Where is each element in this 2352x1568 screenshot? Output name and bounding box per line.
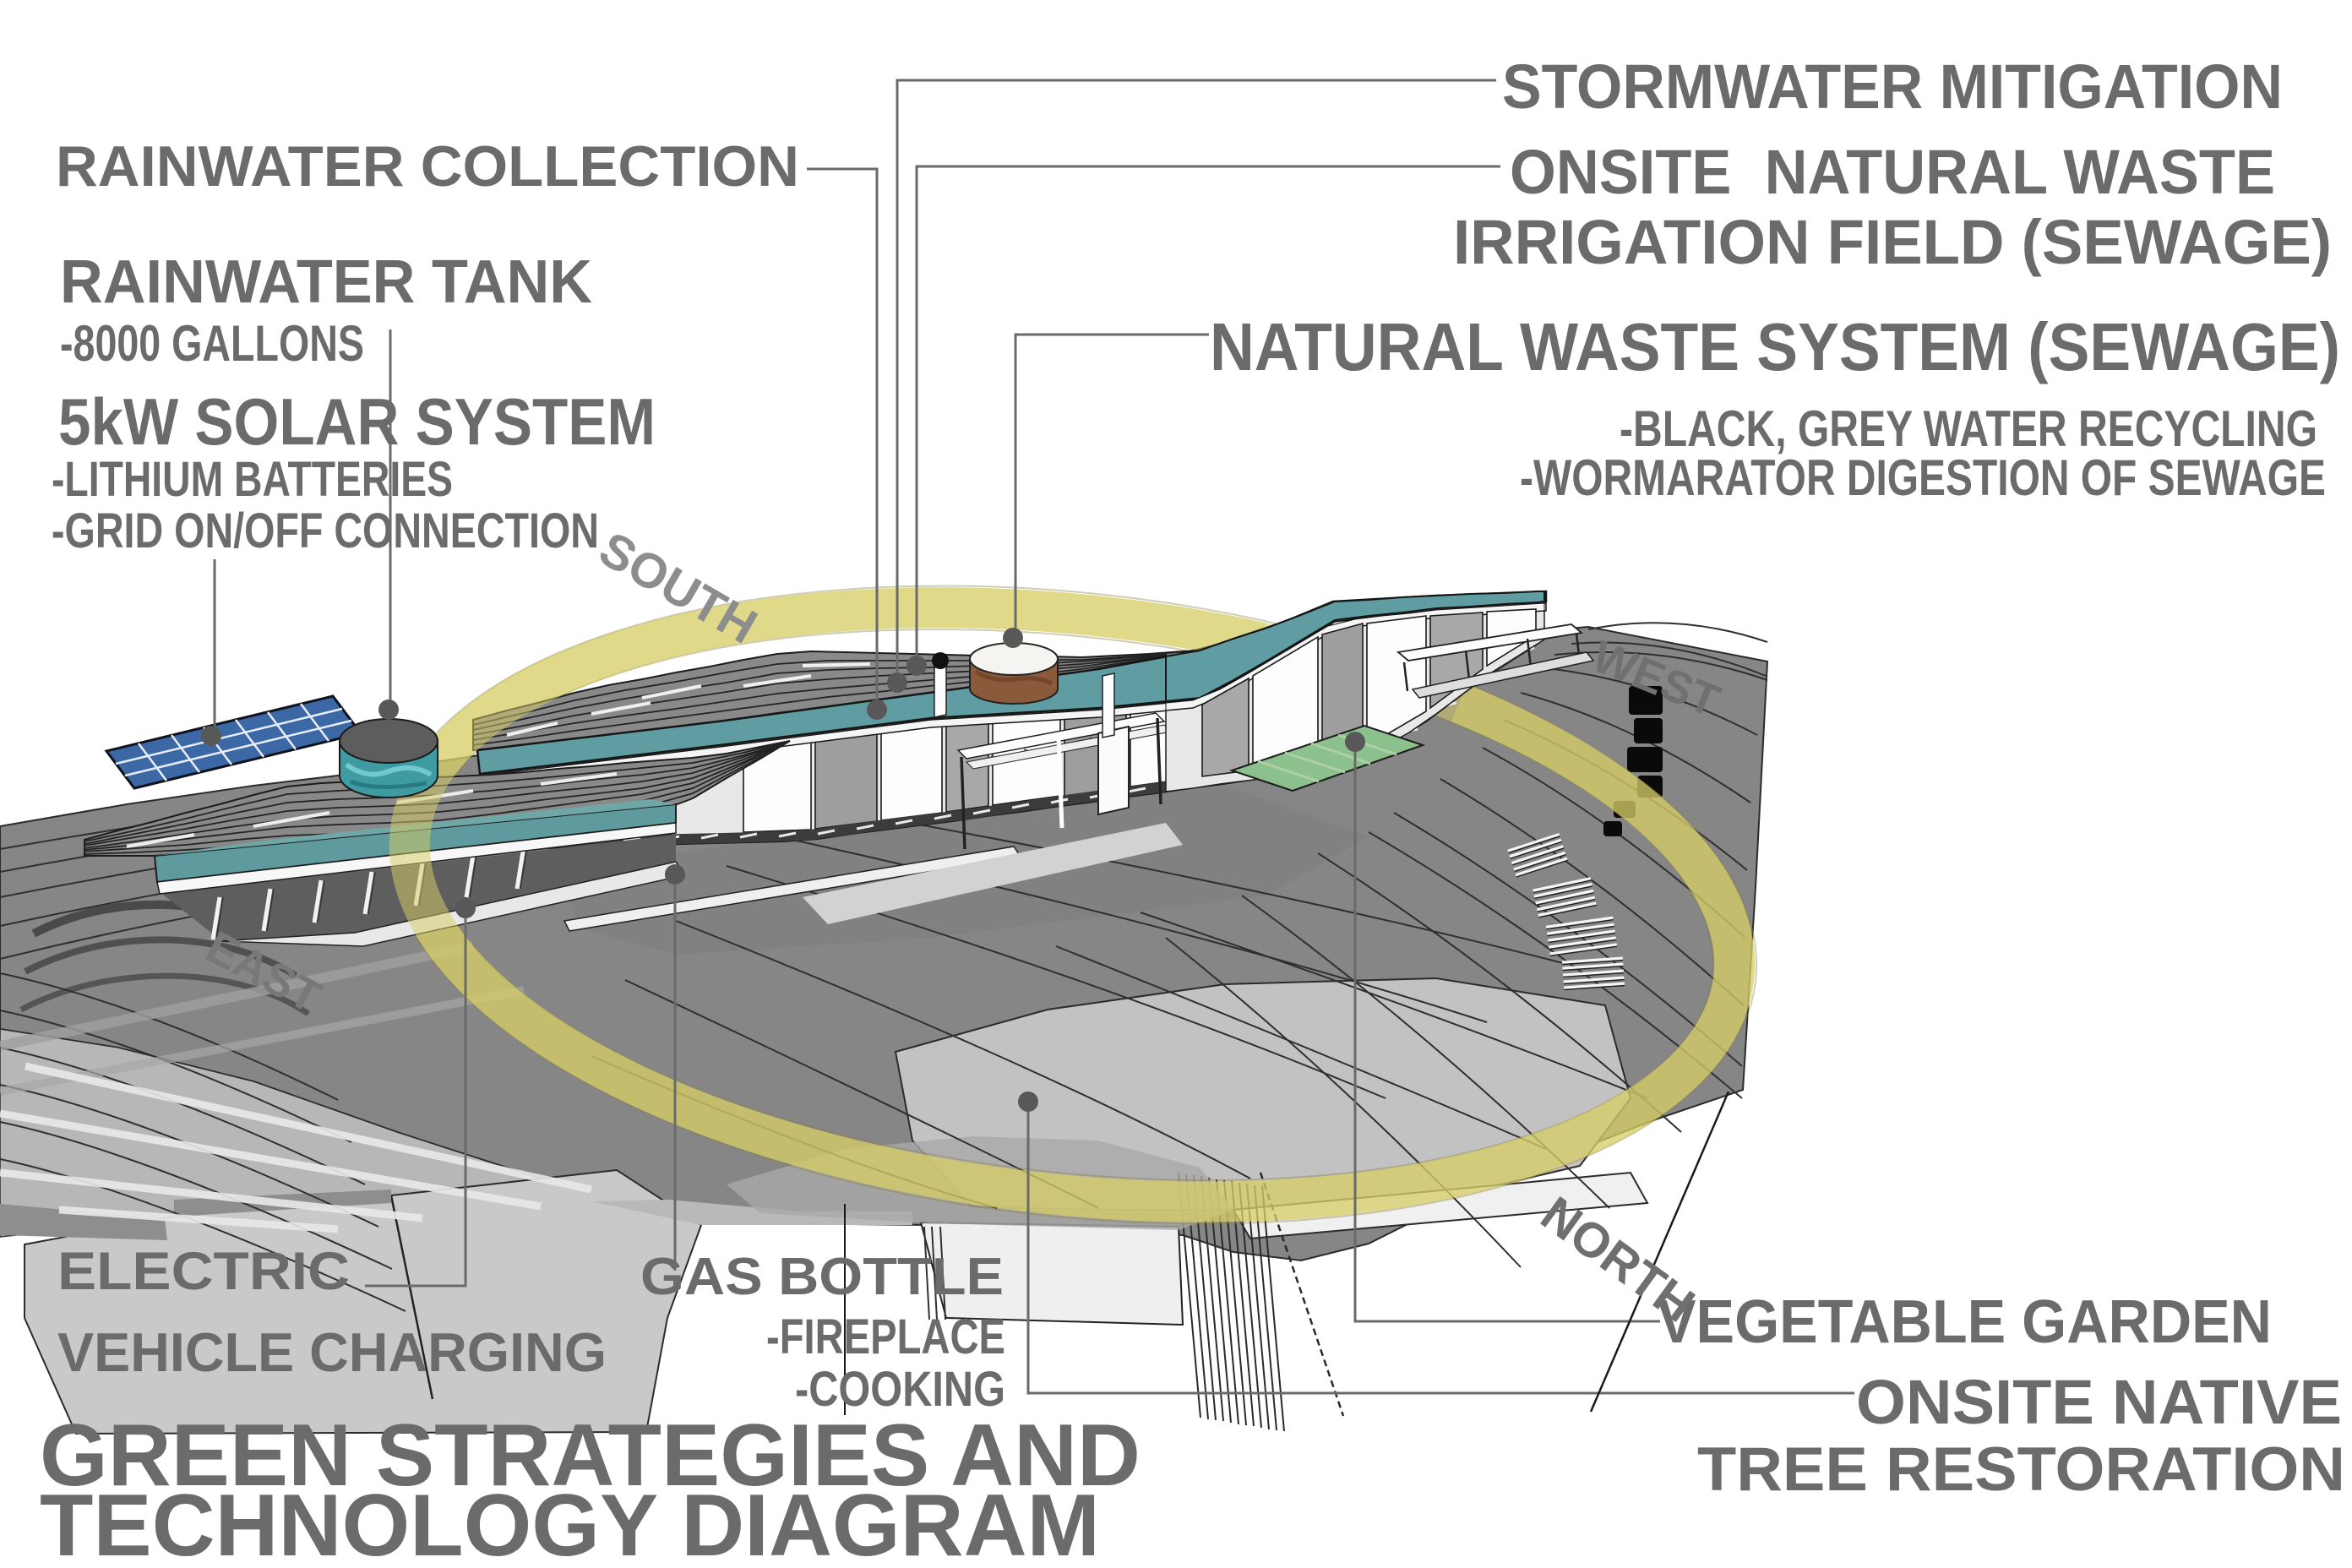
svg-text:GAS BOTTLE: GAS BOTTLE xyxy=(640,1248,1004,1306)
svg-text:-8000 GALLONS: -8000 GALLONS xyxy=(60,315,364,372)
svg-text:IRRIGATION FIELD (SEWAGE): IRRIGATION FIELD (SEWAGE) xyxy=(1453,207,2332,277)
svg-text:RAINWATER TANK: RAINWATER TANK xyxy=(60,248,592,316)
svg-text:-GRID ON/OFF CONNECTION: -GRID ON/OFF CONNECTION xyxy=(52,504,599,558)
svg-text:RAINWATER COLLECTION: RAINWATER COLLECTION xyxy=(56,134,799,199)
svg-text:TREE RESTORATION: TREE RESTORATION xyxy=(1697,1435,2345,1504)
svg-text:-FIREPLACE: -FIREPLACE xyxy=(766,1309,1005,1364)
svg-text:VEGETABLE GARDEN: VEGETABLE GARDEN xyxy=(1658,1288,2272,1356)
svg-text:-BLACK, GREY WATER RECYCLING: -BLACK, GREY WATER RECYCLING xyxy=(1620,400,2317,457)
svg-text:-WORMARATOR DIGESTION OF SEWAG: -WORMARATOR DIGESTION OF SEWAGE xyxy=(1520,449,2326,506)
svg-text:STORMWATER MITIGATION: STORMWATER MITIGATION xyxy=(1502,52,2283,122)
svg-text:ONSITE NATURAL WASTE: ONSITE NATURAL WASTE xyxy=(1510,137,2275,207)
svg-text:NATURAL WASTE SYSTEM (SEWAGE): NATURAL WASTE SYSTEM (SEWAGE) xyxy=(1210,309,2340,384)
svg-text:VEHICLE CHARGING: VEHICLE CHARGING xyxy=(57,1321,607,1383)
svg-text:ELECTRIC: ELECTRIC xyxy=(57,1242,350,1301)
svg-text:-LITHIUM BATTERIES: -LITHIUM BATTERIES xyxy=(52,452,453,507)
svg-text:5kW SOLAR SYSTEM: 5kW SOLAR SYSTEM xyxy=(58,384,656,459)
svg-text:ONSITE NATIVE: ONSITE NATIVE xyxy=(1856,1367,2342,1437)
svg-text:TECHNOLOGY DIAGRAM: TECHNOLOGY DIAGRAM xyxy=(40,1477,1100,1568)
